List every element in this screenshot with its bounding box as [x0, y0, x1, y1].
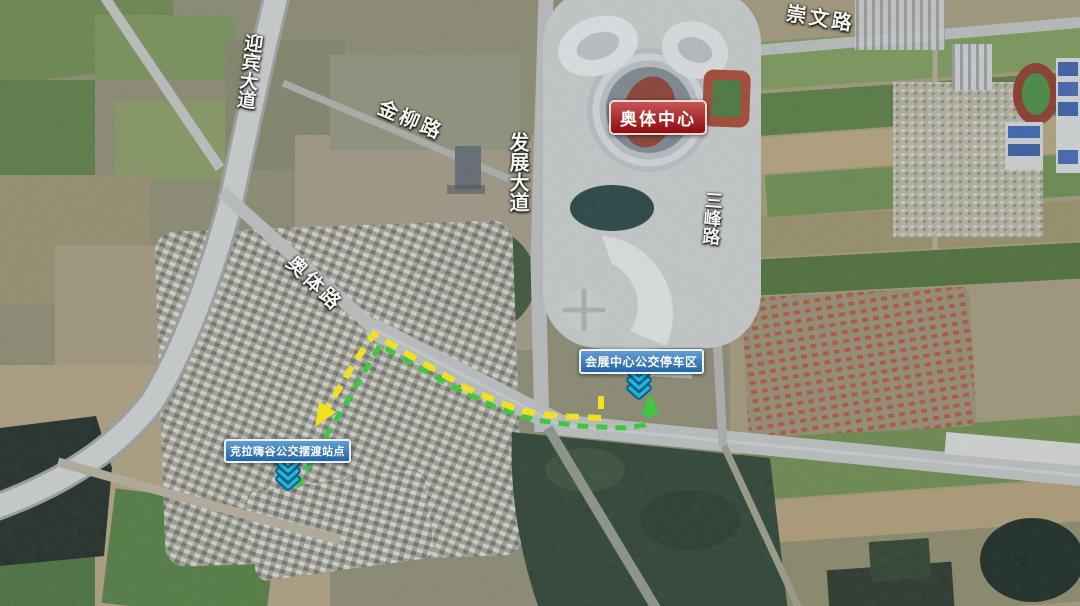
road-label-jinliu-road: 金柳路 [374, 97, 447, 145]
poi-label-olympic-center: 奥体中心 [609, 100, 707, 135]
road-label-aoti-road: 奥体路 [281, 252, 347, 316]
road-label-yingbin-avenue: 迎宾大道 [232, 32, 263, 110]
poi-label-shuttle-station: 克拉嗨谷公交摆渡站点 [224, 439, 351, 463]
road-label-fazhan-avenue: 发展大道 [505, 132, 528, 212]
road-label-chongwen-road: 崇文路 [784, 3, 856, 37]
satellite-map: 迎宾大道 金柳路 发展大道 崇文路 三峰路 奥体路 奥体中心 会展中心公交停车区… [0, 0, 1080, 606]
poi-label-exhibition-parking: 会展中心公交停车区 [579, 349, 704, 374]
road-label-sanfeng-road: 三峰路 [699, 190, 723, 245]
label-layer: 迎宾大道 金柳路 发展大道 崇文路 三峰路 奥体路 奥体中心 会展中心公交停车区… [0, 0, 1080, 606]
